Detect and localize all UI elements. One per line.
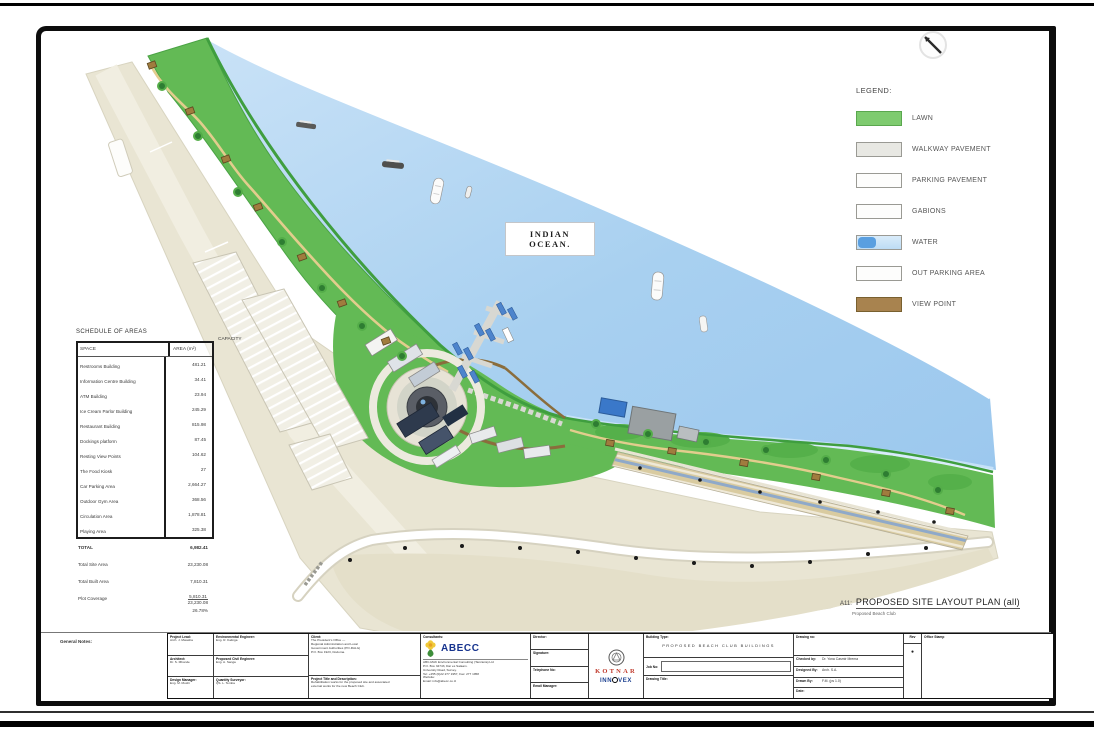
partner-brand-innovex: INNVEX bbox=[600, 677, 632, 684]
title-block-consultant-col: Consultants: ABECC ABC-MAK Environmental… bbox=[421, 634, 531, 698]
schedule-of-areas: SCHEDULE OF AREAS CAPACITY SPACE AREA (m… bbox=[76, 329, 260, 613]
schedule-title: SCHEDULE OF AREAS bbox=[76, 329, 260, 335]
schedule-header-row: SPACE AREA (m²) bbox=[78, 343, 212, 357]
title-block-staff-col2: Environmental Engineer:Eng. R. KalingaPr… bbox=[214, 634, 309, 698]
director-cell: Telephone No: bbox=[531, 667, 588, 683]
partner-brand-kotnar: KOTNAR bbox=[595, 668, 637, 675]
schedule-row-space: Ice Cream Parlor Building bbox=[78, 402, 166, 417]
schedule-col-space: SPACE bbox=[78, 343, 170, 356]
staff-cell: Design Manager:Eng. M. Mushi bbox=[168, 677, 213, 698]
title-block-drawing-col: Drawing no: Checked by:Dr. Yona Casmir M… bbox=[794, 634, 904, 698]
ocean-label-line2: OCEAN. bbox=[529, 239, 571, 249]
check-label: Checked by: bbox=[796, 657, 822, 661]
schedule-row-space: The Food Kiosk bbox=[78, 462, 166, 477]
schedule-row-space: Dockings platform bbox=[78, 432, 166, 447]
title-block-office-stamp-col: Office Stamp bbox=[922, 634, 1053, 698]
title-block-client-col: Client: The President's Office —Regional… bbox=[309, 634, 421, 698]
staff-name: QS. L. Temba bbox=[216, 682, 306, 686]
schedule-row-space: Outdoor Gym Area bbox=[78, 492, 166, 507]
drawing-no-cell: Drawing no: bbox=[794, 634, 903, 656]
check-rows: Checked by:Dr. Yona Casmir MremaDesigned… bbox=[794, 656, 903, 698]
check-row: Date: bbox=[794, 688, 903, 698]
walkway-swatch-icon bbox=[856, 142, 902, 157]
summary-label: Total Built Area bbox=[76, 579, 166, 584]
schedule-col-capacity: CAPACITY bbox=[218, 337, 242, 342]
legend-items: LAWNWALKWAY PAVEMENTPARKING PAVEMENTGABI… bbox=[856, 103, 1071, 320]
schedule-row-area: 23.94 bbox=[166, 392, 212, 397]
rev-label: Rev bbox=[909, 635, 915, 639]
schedule-row-area: 481.21 bbox=[166, 362, 212, 367]
legend-item-label: OUT PARKING AREA bbox=[912, 270, 985, 277]
schedule-row: ATM Building23.94 bbox=[78, 387, 212, 402]
schedule-row-area: 815.98 bbox=[166, 422, 212, 427]
rev-label-cell: Rev bbox=[904, 634, 921, 644]
schedule-row-space: Playing Area bbox=[78, 522, 166, 537]
schedule-row: Restaurant Building815.98 bbox=[78, 417, 212, 432]
check-value: F.M. (ps 1.0) bbox=[822, 679, 841, 683]
schedule-summary-row: TOTAL6,982.41 bbox=[76, 539, 214, 556]
office-stamp-label: Office Stamp bbox=[924, 635, 944, 639]
consultant-label: Consultants: bbox=[423, 635, 528, 639]
drawing-sheet: INDIAN OCEAN. LEGEND: LAWNWALKWAY PAVEME… bbox=[36, 26, 1056, 706]
title-block: Project Lead:Arch. J. MwashaArchitect:Dr… bbox=[167, 633, 1054, 699]
director-label: Telephone No: bbox=[533, 668, 586, 672]
check-label: Designed By: bbox=[796, 668, 822, 672]
lawn-swatch-icon bbox=[856, 111, 902, 126]
summary-value: 7,810.31 bbox=[166, 579, 214, 584]
building-type-label: Building Type: bbox=[646, 635, 669, 639]
schedule-row-area: 1,878.81 bbox=[166, 512, 212, 517]
schedule-summary: TOTAL6,982.41Total Site Area23,230.08Tot… bbox=[76, 539, 214, 613]
staff-cell: Quantity Surveyor:QS. L. Temba bbox=[214, 677, 308, 698]
job-no-value-box bbox=[661, 661, 791, 672]
legend-item: LAWN bbox=[856, 103, 1071, 134]
title-block-director-col: Director:Signature:Telephone No:Email Ma… bbox=[531, 634, 589, 698]
consultant-line: Email: info@abecc.co.tz bbox=[423, 680, 528, 684]
check-label: Drawn By: bbox=[796, 679, 822, 683]
schedule-row-area: 325.38 bbox=[166, 527, 212, 532]
title-block-partners-col: KOTNAR INNVEX bbox=[589, 634, 644, 698]
consultant-cell: Consultants: ABECC ABC-MAK Environmental… bbox=[421, 634, 530, 698]
legend-item: VIEW POINT bbox=[856, 289, 1071, 320]
schedule-row-space: Information Centre Building bbox=[78, 372, 166, 387]
schedule-row-space: Circulation Area bbox=[78, 507, 166, 522]
schedule-row: Playing Area325.38 bbox=[78, 522, 212, 537]
abecc-flower-logo-icon bbox=[423, 640, 438, 658]
consultant-name: ABECC bbox=[441, 644, 480, 654]
legend-item-label: VIEW POINT bbox=[912, 301, 956, 308]
staff-name: Dr. S. Mbonde bbox=[170, 661, 211, 665]
schedule-rows: Restrooms Building481.21Information Cent… bbox=[78, 357, 212, 537]
check-row: Checked by:Dr. Yona Casmir Mrema bbox=[794, 656, 903, 667]
view-point-swatch-icon bbox=[856, 297, 902, 312]
legend-item: WATER bbox=[856, 227, 1071, 258]
director-cell: Signature: bbox=[531, 650, 588, 666]
summary-label: TOTAL bbox=[76, 545, 166, 550]
check-value: Dr. Yona Casmir Mrema bbox=[822, 657, 858, 661]
staff-cell: Proposed Civil Engineer:Eng. A. Sanga bbox=[214, 656, 308, 678]
drawing-number: A11: bbox=[840, 601, 852, 607]
schedule-row-area: 104.62 bbox=[166, 452, 212, 457]
office-stamp-cell: Office Stamp bbox=[922, 634, 1053, 698]
director-label: Director: bbox=[533, 635, 586, 639]
drawing-no-label: Drawing no: bbox=[796, 635, 815, 639]
check-label: Date: bbox=[796, 689, 822, 693]
director-label: Email Manager: bbox=[533, 684, 586, 688]
schedule-row-area: 2,664.27 bbox=[166, 482, 212, 487]
summary-percentage: 26.78% bbox=[76, 607, 214, 613]
check-row: Designed By:Arch. S.A. bbox=[794, 667, 903, 678]
schedule-row-area: 34.41 bbox=[166, 377, 212, 382]
rev-value: ● bbox=[906, 649, 919, 655]
legend: LEGEND: LAWNWALKWAY PAVEMENTPARKING PAVE… bbox=[856, 86, 1071, 320]
schedule-row: Restrooms Building481.21 bbox=[78, 357, 212, 372]
staff-name: Arch. J. Mwasha bbox=[170, 639, 211, 643]
legend-item-label: PARKING PAVEMENT bbox=[912, 177, 987, 184]
north-arrow-icon bbox=[920, 32, 946, 58]
staff-cell: Architect:Dr. S. Mbonde bbox=[168, 656, 213, 678]
schedule-summary-row: Plot Coverage5,810.3123,230.08 bbox=[76, 590, 214, 607]
legend-item: WALKWAY PAVEMENT bbox=[856, 134, 1071, 165]
schedule-row: Information Centre Building34.41 bbox=[78, 372, 212, 387]
schedule-row-area: 27 bbox=[166, 467, 212, 472]
schedule-row-area: 87.45 bbox=[166, 437, 212, 442]
legend-item: PARKING PAVEMENT bbox=[856, 165, 1071, 196]
summary-value: 6,982.41 bbox=[166, 545, 214, 550]
director-cell: Director: bbox=[531, 634, 588, 650]
drawing-title-cell: Drawing Title: bbox=[644, 676, 793, 698]
summary-value: 23,230.08 bbox=[166, 562, 214, 567]
schedule-row: Car Parking Area2,664.27 bbox=[78, 477, 212, 492]
title-block-rev-col: Rev ● bbox=[904, 634, 922, 698]
page-top-rule bbox=[0, 3, 1094, 6]
client-line: P.O. Box 1923, Dodoma. bbox=[311, 651, 418, 655]
page: INDIAN OCEAN. LEGEND: LAWNWALKWAY PAVEME… bbox=[0, 0, 1094, 730]
drawing-caption: A11: PROPOSED SITE LAYOUT PLAN (all) Pro… bbox=[840, 597, 1070, 616]
schedule-row-area: 245.29 bbox=[166, 407, 212, 412]
schedule-row-space: Resting View Points bbox=[78, 447, 166, 462]
page-bottom-rule-thick bbox=[0, 721, 1094, 727]
ocean-label: INDIAN OCEAN. bbox=[505, 222, 595, 256]
job-no-cell: Job No: bbox=[644, 658, 793, 676]
legend-item-label: WALKWAY PAVEMENT bbox=[912, 146, 991, 153]
page-bottom-rule-thin bbox=[0, 711, 1094, 713]
schedule-row: The Food Kiosk27 bbox=[78, 462, 212, 477]
staff-name: Eng. R. Kalinga bbox=[216, 639, 306, 643]
staff-name: Eng. M. Mushi bbox=[170, 682, 211, 686]
summary-label: Plot Coverage bbox=[76, 596, 166, 601]
legend-item-label: GABIONS bbox=[912, 208, 946, 215]
stamp-seal-icon bbox=[608, 649, 625, 666]
partners-cell: KOTNAR INNVEX bbox=[589, 634, 643, 698]
schedule-row-space: ATM Building bbox=[78, 387, 166, 402]
schedule-summary-row: Total Built Area7,810.31 bbox=[76, 573, 214, 590]
legend-title: LEGEND: bbox=[856, 86, 1071, 95]
staff-cell: Environmental Engineer:Eng. R. Kalinga bbox=[214, 634, 308, 656]
schedule-col-area: AREA (m²) bbox=[170, 347, 212, 352]
project-line: external works for the new Beach Club. bbox=[311, 685, 418, 689]
check-value: Arch. S.A. bbox=[822, 668, 837, 672]
schedule-row-space: Car Parking Area bbox=[78, 477, 166, 492]
schedule-row-area: 368.56 bbox=[166, 497, 212, 502]
legend-item: OUT PARKING AREA bbox=[856, 258, 1071, 289]
title-block-staff-col1: Project Lead:Arch. J. MwashaArchitect:Dr… bbox=[168, 634, 214, 698]
job-no-label: Job No: bbox=[646, 665, 658, 669]
summary-label: Total Site Area bbox=[76, 562, 166, 567]
gabions-swatch-icon bbox=[856, 204, 902, 219]
schedule-row-space: Restaurant Building bbox=[78, 417, 166, 432]
schedule-row: Ice Cream Parlor Building245.29 bbox=[78, 402, 212, 417]
rev-value-cell: ● bbox=[904, 644, 921, 698]
staff-name: Eng. A. Sanga bbox=[216, 661, 306, 665]
legend-item-label: LAWN bbox=[912, 115, 933, 122]
drawing-subtitle: Proposed Beach Club bbox=[852, 611, 1070, 616]
schedule-row: Resting View Points104.62 bbox=[78, 447, 212, 462]
project-title-cell: Project Title and Description: Rehabilit… bbox=[309, 676, 420, 698]
director-cell: Email Manager: bbox=[531, 683, 588, 698]
schedule-table: SPACE AREA (m²) Restrooms Building481.21… bbox=[76, 341, 214, 539]
schedule-summary-row: Total Site Area23,230.08 bbox=[76, 556, 214, 573]
legend-item-label: WATER bbox=[912, 239, 938, 246]
staff-cell: Project Lead:Arch. J. Mwasha bbox=[168, 634, 213, 656]
building-type-value: PROPOSED BEACH CLUB BUILDINGS bbox=[646, 643, 791, 648]
title-block-building-col: Building Type: PROPOSED BEACH CLUB BUILD… bbox=[644, 634, 794, 698]
schedule-row: Circulation Area1,878.81 bbox=[78, 507, 212, 522]
drawing-title: PROPOSED SITE LAYOUT PLAN (all) bbox=[856, 597, 1020, 609]
ocean-label-line1: INDIAN bbox=[530, 229, 570, 239]
building-type-cell: Building Type: PROPOSED BEACH CLUB BUILD… bbox=[644, 634, 793, 658]
schedule-row: Dockings platform87.45 bbox=[78, 432, 212, 447]
client-cell: Client: The President's Office —Regional… bbox=[309, 634, 420, 676]
general-notes-label: General Notes: bbox=[60, 639, 92, 644]
out-parking-swatch-icon bbox=[856, 266, 902, 281]
legend-item: GABIONS bbox=[856, 196, 1071, 227]
drawing-title-label: Drawing Title: bbox=[646, 677, 668, 681]
check-row: Drawn By:F.M. (ps 1.0) bbox=[794, 678, 903, 689]
summary-fraction: 5,810.3123,230.08 bbox=[166, 592, 214, 605]
schedule-row: Outdoor Gym Area368.56 bbox=[78, 492, 212, 507]
parking-swatch-icon bbox=[856, 173, 902, 188]
water-swatch-icon bbox=[856, 235, 902, 250]
director-label: Signature: bbox=[533, 651, 586, 655]
schedule-row-space: Restrooms Building bbox=[78, 357, 166, 372]
